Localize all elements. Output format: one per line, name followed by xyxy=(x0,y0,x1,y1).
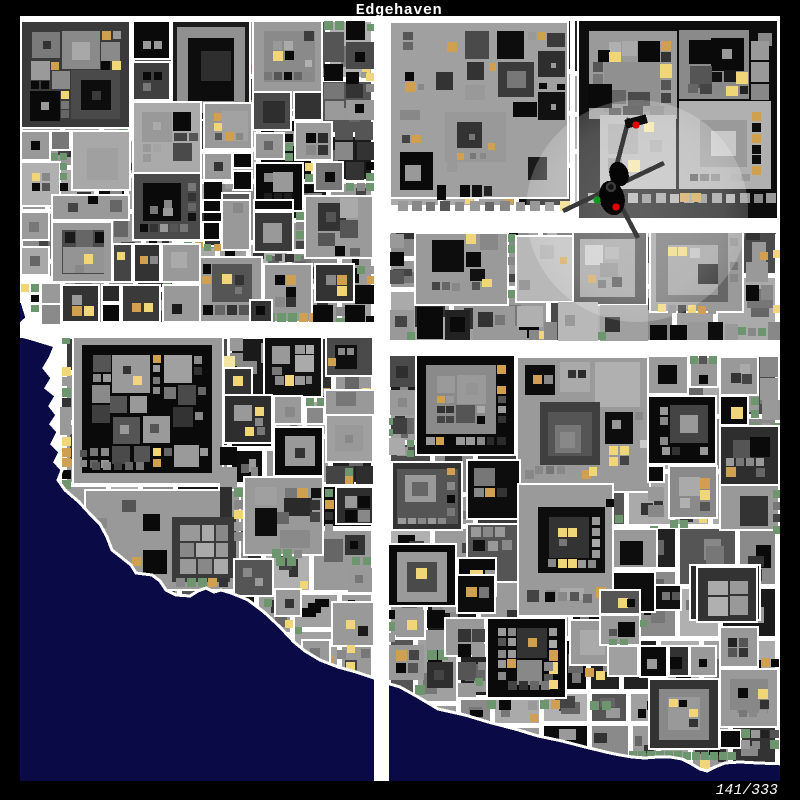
svg-text:Edgehaven: Edgehaven xyxy=(356,2,442,19)
svg-text:141/333: 141/333 xyxy=(716,783,778,799)
